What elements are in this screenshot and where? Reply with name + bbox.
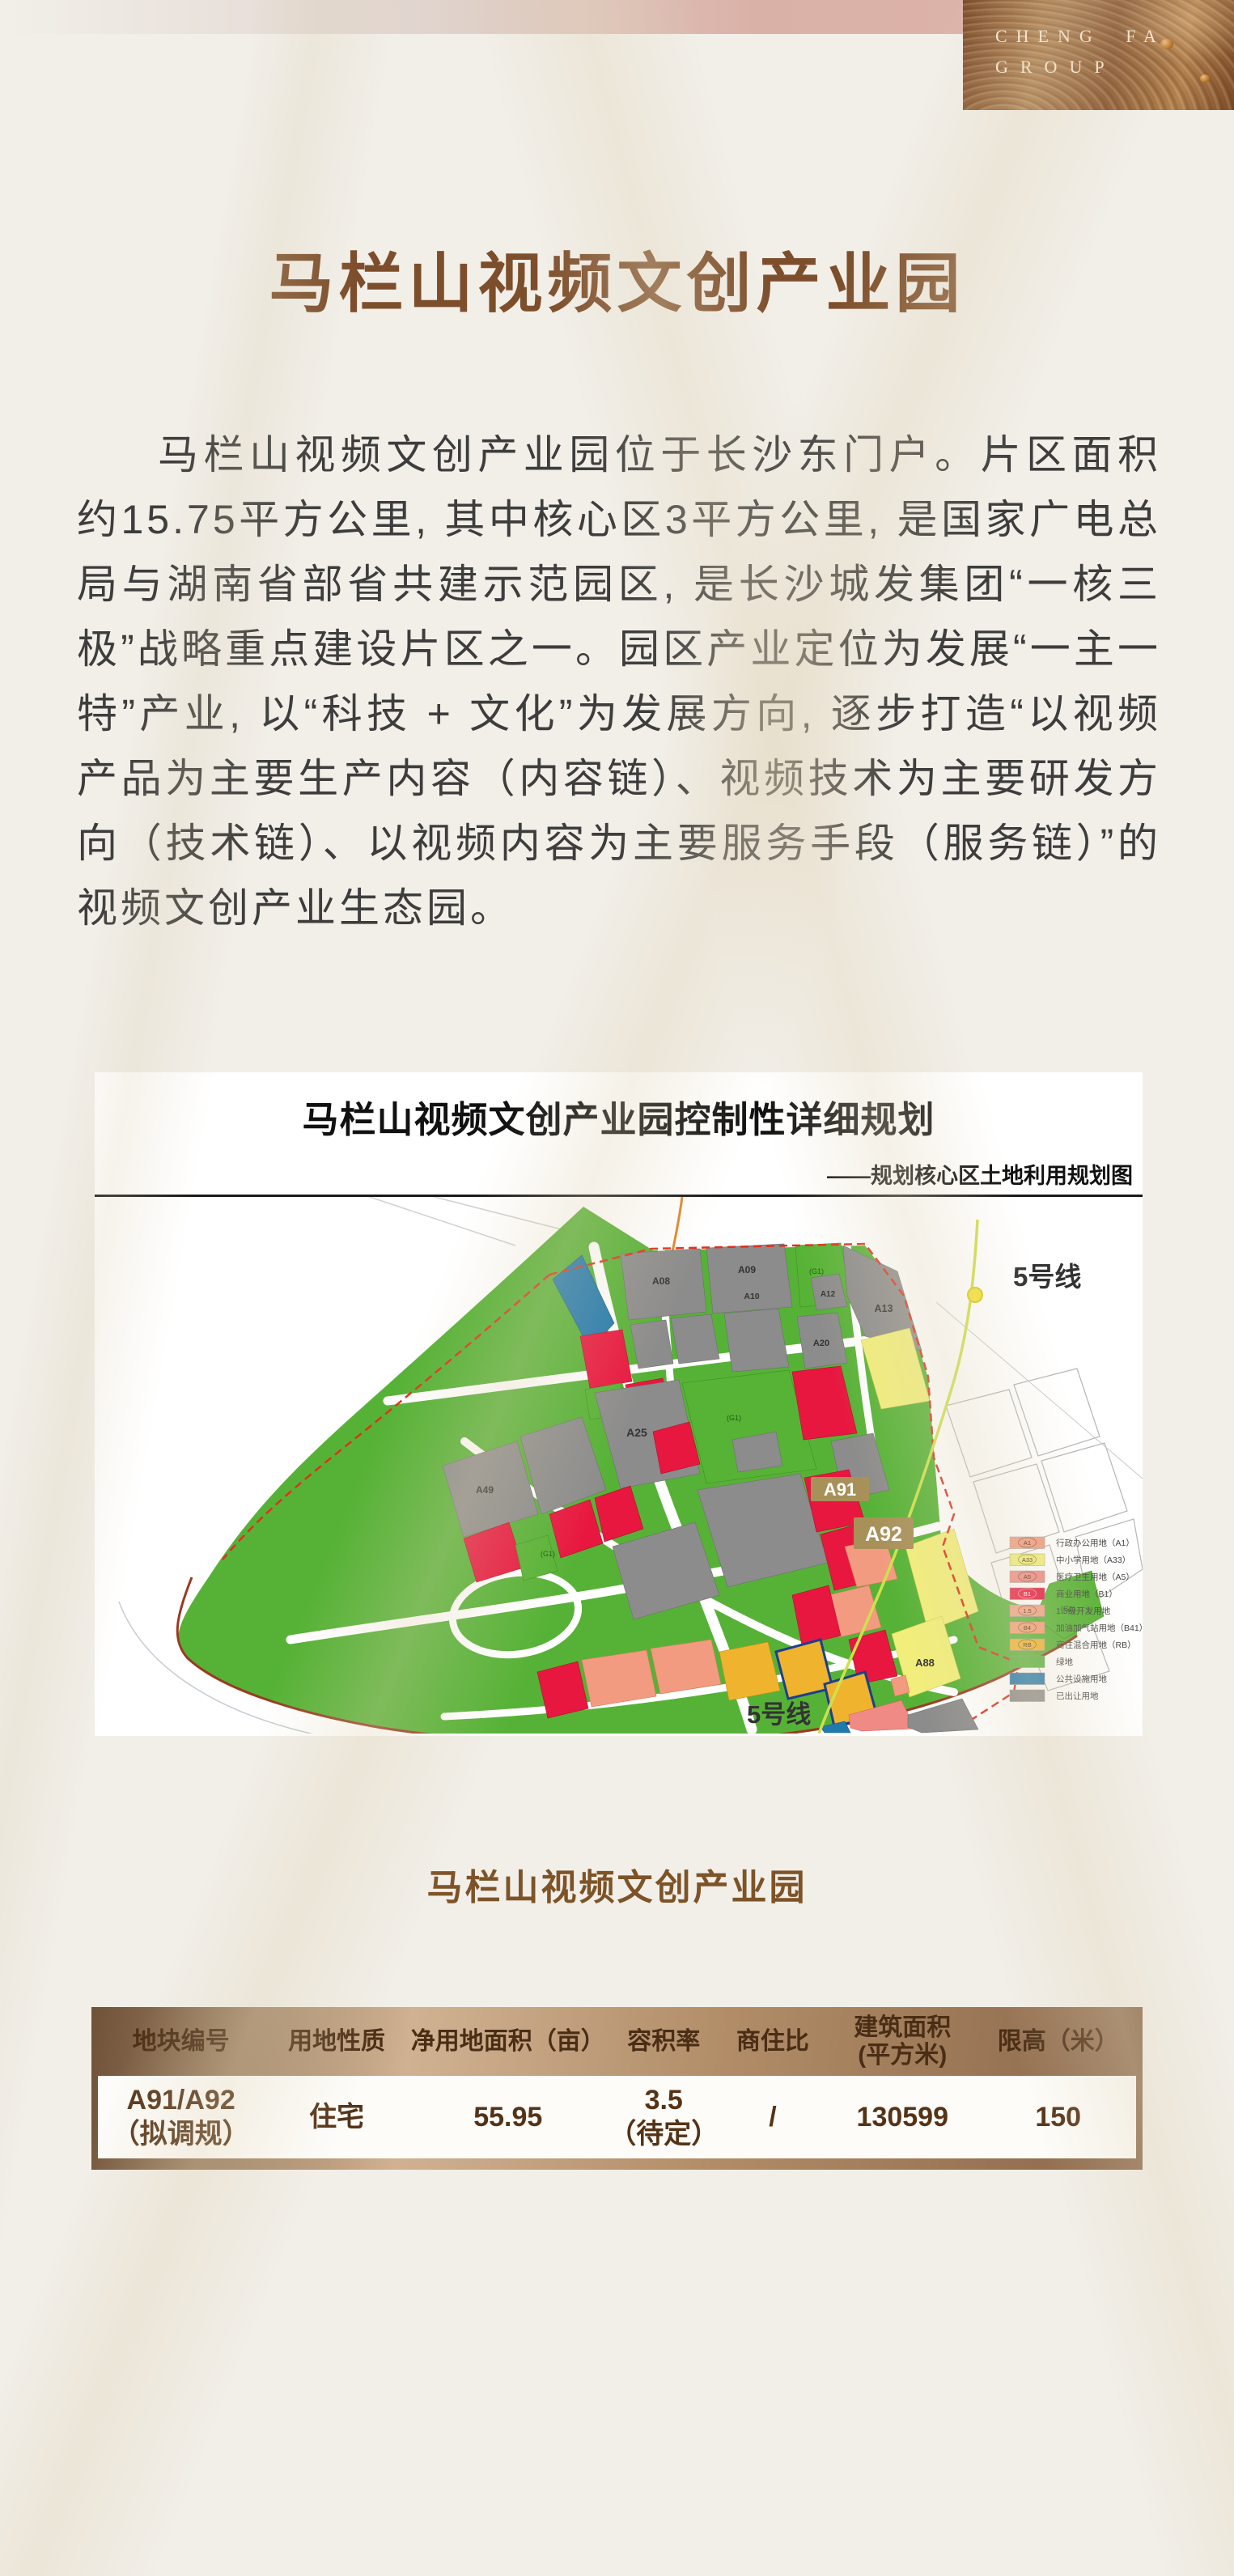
svg-text:1.5级开发用地: 1.5级开发用地 (1056, 1606, 1111, 1616)
header-cell-plot-number: 地块编号 (98, 2028, 264, 2056)
header-cell-commercial-residential-ratio: 商住比 (721, 2028, 825, 2056)
plot-label-a91: A91 (811, 1477, 869, 1501)
legend-item: A1 行政办公用地（A1） (1010, 1537, 1134, 1549)
wood-droplet-icon (1200, 74, 1210, 83)
block-label-a13: A13 (875, 1303, 893, 1314)
page-title: 马栏山视频文创产业园 (0, 231, 1234, 325)
map-subtitle: ——规划核心区土地利用规划图 (827, 1158, 1133, 1190)
legend-item: 1.5 1.5级开发用地 (1010, 1605, 1111, 1617)
block-label-g1: (G1) (541, 1550, 555, 1558)
svg-text:B1: B1 (1024, 1590, 1031, 1598)
legend-item: 公共设施用地 (1010, 1673, 1107, 1685)
brand-name-line1: CHENG FA (995, 21, 1165, 52)
header-cell-height-limit: 限高（米） (981, 2028, 1136, 2056)
block-label-a25: A25 (626, 1426, 647, 1439)
block-label-a10: A10 (744, 1292, 759, 1301)
svg-text:RB: RB (1023, 1641, 1031, 1649)
section-title: 马栏山视频文创产业园 (0, 1858, 1234, 1910)
svg-text:中小学用地（A33）: 中小学用地（A33） (1056, 1555, 1130, 1565)
land-parcel-table: 地块编号 用地性质 净用地面积（亩） 容积率 商住比 建筑面积 (平方米) 限高… (91, 2007, 1143, 2170)
header-cell-net-area: 净用地面积（亩） (409, 2028, 607, 2056)
legend-item: B4 加油加气站用地（B41） (1010, 1622, 1143, 1634)
brand-logo: CHENG FA GROUP (963, 0, 1234, 110)
table-data-row: A91/A92 （拟调规） 住宅 55.95 3.5 （待定） / 130599… (98, 2076, 1136, 2158)
cell-net-area: 55.95 (409, 2100, 607, 2134)
svg-text:A1: A1 (1024, 1539, 1031, 1547)
header-cell-land-use: 用地性质 (264, 2028, 409, 2056)
faint-road-line (435, 1197, 580, 1234)
plot-label-a92: A92 (854, 1517, 914, 1549)
metro-station-dot (968, 1288, 982, 1302)
svg-text:A92: A92 (865, 1523, 902, 1546)
block-label-g1: (G1) (809, 1267, 824, 1275)
map-header: 马栏山视频文创产业园控制性详细规划 ——规划核心区土地利用规划图 (95, 1072, 1143, 1197)
svg-text:已出让用地: 已出让用地 (1056, 1691, 1099, 1701)
planning-map-panel: 马栏山视频文创产业园控制性详细规划 ——规划核心区土地利用规划图 (95, 1072, 1143, 1736)
table-header-row: 地块编号 用地性质 净用地面积（亩） 容积率 商住比 建筑面积 (平方米) 限高… (98, 2007, 1136, 2076)
block-label-a09: A09 (738, 1264, 756, 1275)
svg-text:A91: A91 (824, 1479, 856, 1500)
brand-name-line2: GROUP (995, 52, 1165, 83)
faint-road-line (370, 1197, 515, 1246)
svg-text:A5: A5 (1024, 1573, 1031, 1581)
legend-item: B1 商业用地（B1） (1010, 1588, 1117, 1600)
header-cell-gfa: 建筑面积 (平方米) (825, 2014, 980, 2069)
header-cell-plot-ratio: 容积率 (607, 2028, 721, 2056)
cell-plot-number: A91/A92 （拟调规） (98, 2083, 264, 2151)
label-line5-top: 5号线 (1013, 1262, 1081, 1292)
brand-name: CHENG FA GROUP (995, 21, 1165, 83)
svg-text:行政办公用地（A1）: 行政办公用地（A1） (1056, 1538, 1134, 1548)
block-label-a49: A49 (476, 1484, 494, 1496)
cell-plot-ratio: 3.5 （待定） (607, 2083, 721, 2151)
map-title: 马栏山视频文创产业园控制性详细规划 (95, 1090, 1143, 1143)
svg-text:商业用地（B1）: 商业用地（B1） (1056, 1589, 1117, 1599)
svg-text:B4: B4 (1024, 1624, 1031, 1632)
cell-land-use: 住宅 (264, 2100, 409, 2134)
block-label-a20: A20 (813, 1339, 829, 1348)
legend-item: A5 医疗卫生用地（A5） (1010, 1571, 1134, 1583)
planning-map: 5号线 5号线 A08 A09 A10 A12 A13 A20 A25 A49 … (95, 1197, 1143, 1734)
svg-text:公共设施用地: 公共设施用地 (1056, 1674, 1107, 1684)
block-label-a88: A88 (915, 1657, 935, 1669)
legend-item: 绿地 (1010, 1656, 1074, 1668)
block-label-a08: A08 (652, 1275, 670, 1287)
block-label-a12: A12 (821, 1290, 836, 1299)
page-background: { "brand": { "line1": "CHENG FA", "line2… (0, 0, 1234, 2576)
legend-item: RB 商住混合用地（RB） (1010, 1639, 1136, 1651)
legend-item: A33 中小学用地（A33） (1010, 1554, 1130, 1566)
top-accent-band (0, 0, 965, 34)
label-line5-bottom: 5号线 (747, 1700, 811, 1729)
svg-text:A33: A33 (1022, 1556, 1033, 1564)
cell-height-limit: 150 (981, 2100, 1136, 2134)
svg-text:医疗卫生用地（A5）: 医疗卫生用地（A5） (1056, 1572, 1134, 1582)
legend-item: 已出让用地 (1010, 1690, 1099, 1702)
block-label-g1: (G1) (727, 1414, 741, 1422)
svg-text:商住混合用地（RB）: 商住混合用地（RB） (1056, 1640, 1136, 1650)
cell-commercial-residential-ratio: / (721, 2100, 825, 2134)
cell-gfa: 130599 (825, 2100, 980, 2134)
svg-text:加油加气站用地（B41）: 加油加气站用地（B41） (1056, 1623, 1143, 1633)
svg-text:1.5: 1.5 (1023, 1607, 1031, 1615)
svg-text:绿地: 绿地 (1056, 1657, 1074, 1667)
intro-paragraph: 马栏山视频文创产业园位于长沙东门户。片区面积约15.75平方公里, 其中核心区3… (77, 422, 1161, 940)
